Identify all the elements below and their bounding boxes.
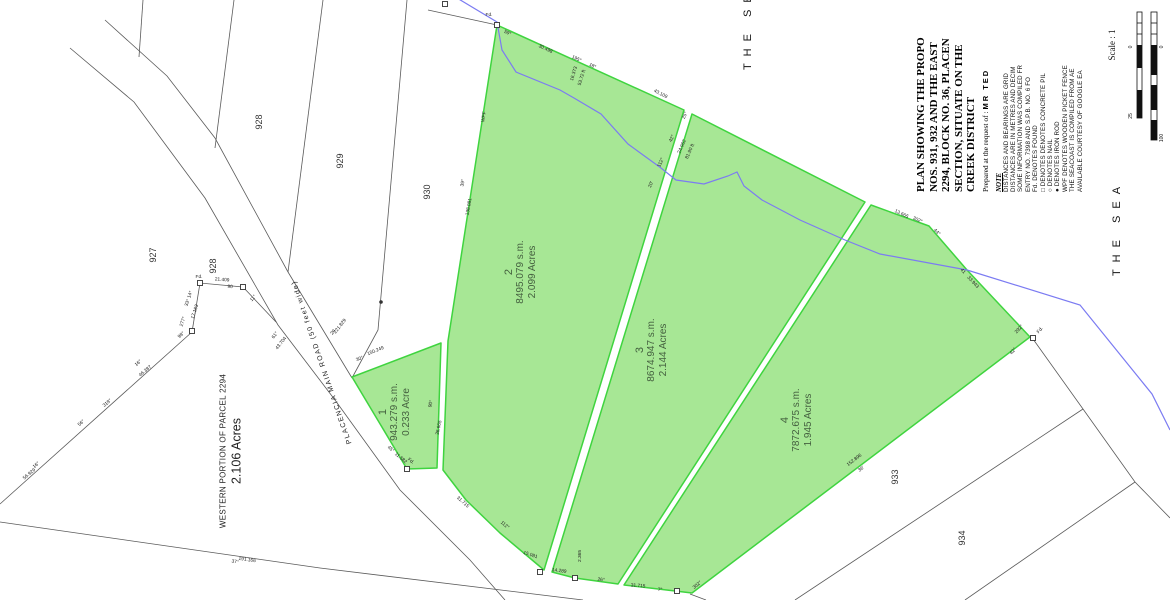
western-portion-acreage: 2.106 Acres [230,374,244,528]
western-portion-label: WESTERN PORTION OF PARCEL 2294 2.106 Acr… [219,374,244,528]
road-upper-edge [105,20,352,378]
parcel-1-area-acres: 0.233 Acre [401,383,413,441]
concrete-pillar-marker [241,285,246,290]
parcel-2-area-sm: 8495.079 s.m. [515,240,527,303]
survey-dimension-label: 26° [597,577,605,584]
parcel-4-area-sm: 7872.675 s.m. [791,388,803,451]
sea-label-right: THE SEA [1111,180,1123,276]
concrete-pillar-marker [675,589,680,594]
note-line: Fd. DENOTES FOUND [1032,0,1039,192]
note-line: AVAILABLE COURTESY OF GOOGLE EA [1077,0,1084,192]
title-block: PLAN SHOWING THE PROPO NOS. 931, 932 AND… [915,0,1084,192]
survey-dimension-label: 30° [355,355,364,363]
boundary-line [215,0,234,148]
neighbor-parcel-number: 934 [957,530,967,545]
parcel-1-area-sm: 943.279 s.m. [389,383,401,441]
parcel-1-label: 1 943.279 s.m. 0.233 Acre [377,383,413,441]
neighbor-parcel-number: 927 [148,247,158,262]
boundary-line [352,0,407,378]
parcel-3-number: 3 [634,318,646,381]
note-line: WPF DENOTES WOODEN PICKET FENCE [1062,0,1069,192]
parcel-4-number: 4 [779,388,791,451]
note-line: □ DENOTES DENOTES CONCRETE PIL [1040,0,1047,192]
scale-tick-label: 100 [1159,134,1165,143]
road-lower-edge [70,48,505,600]
survey-dimension-label: 33° 14° [184,290,195,307]
survey-dimension-label: 46.387 [138,364,153,378]
parcel-4-area-acres: 1.945 Acres [803,388,815,451]
boundary-line [192,283,276,332]
client-name: MR TED [981,69,990,110]
parcel-2-label: 2 8495.079 s.m. 2.099 Acres [503,240,539,303]
concrete-pillar-marker [405,467,410,472]
survey-dimension-label: 17.163 [190,303,200,319]
scale-bar-ticks: 0250100 [1128,45,1165,142]
note-line: ● DENOTES IRON ROD [1054,0,1061,192]
concrete-pillar-marker [495,23,500,28]
concrete-pillar-marker [190,329,195,334]
note-line: ○ DENOTES NAIL [1047,0,1054,192]
parcel-3-label: 3 8674.947 s.m. 2.144 Acres [634,318,670,381]
plan-title-line-2: NOS. 931, 932 AND THE EAST [928,0,941,192]
survey-dimension-label: 277° [179,316,188,327]
survey-dimension-label: 31.715 [631,582,646,589]
scale-tick-label: 25 [1128,113,1134,119]
western-portion-name: WESTERN PORTION OF PARCEL 2294 [219,374,228,528]
scale-tick-label: 0 [1159,45,1165,48]
concrete-pillar-marker [1031,336,1036,341]
concrete-pillar-marker [573,576,578,581]
boundary-line [965,482,1135,600]
survey-dimension-label: 7° [658,587,663,593]
survey-dimension-label: 61° [271,331,280,340]
concrete-pillar-marker [538,570,543,575]
survey-dimension-label: Fd. [196,274,203,280]
note-line: DISTANCES ARE IN METRES AND DECIM [1010,0,1017,192]
plan-title-line-1: PLAN SHOWING THE PROPO [915,0,928,192]
boundary-line [690,594,706,600]
plan-title-line-4: SECTION, SITUATE ON THE [953,0,966,192]
note-line: THE SEACOAST IS COMPILED FROM AE [1069,0,1076,192]
neighbor-parcel-number: 928 [208,258,218,273]
neighbor-parcel-number: 928 [254,114,264,129]
note-line: DISTANCES AND BEARINGS ARE GRID [1003,0,1010,192]
survey-dimension-label: 21.409 [215,276,230,283]
survey-dimension-label: 39° [459,179,466,187]
parcel-3-area-sm: 8674.947 s.m. [646,318,658,381]
neighbor-parcel-number: 929 [335,153,345,168]
prepared-label: Prepared at the request of : [981,111,990,192]
neighbor-parcel-number: 930 [422,184,432,199]
iron-rod-marker [379,300,383,304]
survey-plan-canvas: 59°Fd.30.498195°18°16.37353.72 ft43.1092… [0,0,1170,600]
parcel-1-number: 1 [377,383,389,441]
prepared-line: Prepared at the request of : MR TED [981,0,990,192]
parcel-3-area-acres: 2.144 Acres [658,318,670,381]
survey-dimension-label: Fd. [1036,326,1045,335]
boundary-line [0,522,583,600]
parcel-2-area-acres: 2.099 Acres [527,240,539,303]
survey-dimension-label: 37° [231,559,239,566]
parcel-2-number: 2 [503,240,515,303]
survey-dimension-label: 2.365 [577,550,583,562]
survey-dimension-label: Fd. [486,12,493,18]
parcel-4-label: 4 7872.675 s.m. 1.945 Acres [779,388,815,451]
note-line: ENTRY NO. 7398 AND S.P.B. NO. 6 FO [1025,0,1032,192]
boundary-line [288,0,323,272]
scale-caption: Scale : 1 [1107,30,1117,61]
plan-title-line-3: 2294, BLOCK NO. 36, PLACEN [940,0,953,192]
survey-dimension-label: 191.166 [238,556,256,564]
scale-bar [1137,12,1157,140]
survey-dimension-label: 90 [227,284,233,290]
note-lines: DISTANCES AND BEARINGS ARE GRIDDISTANCES… [1003,0,1084,192]
note-line: SOME INFORMATION WAS COMPILED FR [1017,0,1024,192]
note-heading: NOTE [995,0,1003,192]
concrete-pillar-marker [198,281,203,286]
survey-dimension-label: 56° [77,419,86,428]
concrete-pillar-marker [443,2,448,7]
survey-dimension-label: 318° [102,398,114,409]
sea-label-top: THE SEA [742,0,754,70]
survey-dimension-label: 16° [134,359,143,368]
scale-tick-label: 0 [1128,45,1134,48]
boundary-line [139,0,143,57]
neighbor-parcel-number: 933 [890,469,900,484]
plan-title-line-5: CREEK DISTRICT [965,0,978,192]
